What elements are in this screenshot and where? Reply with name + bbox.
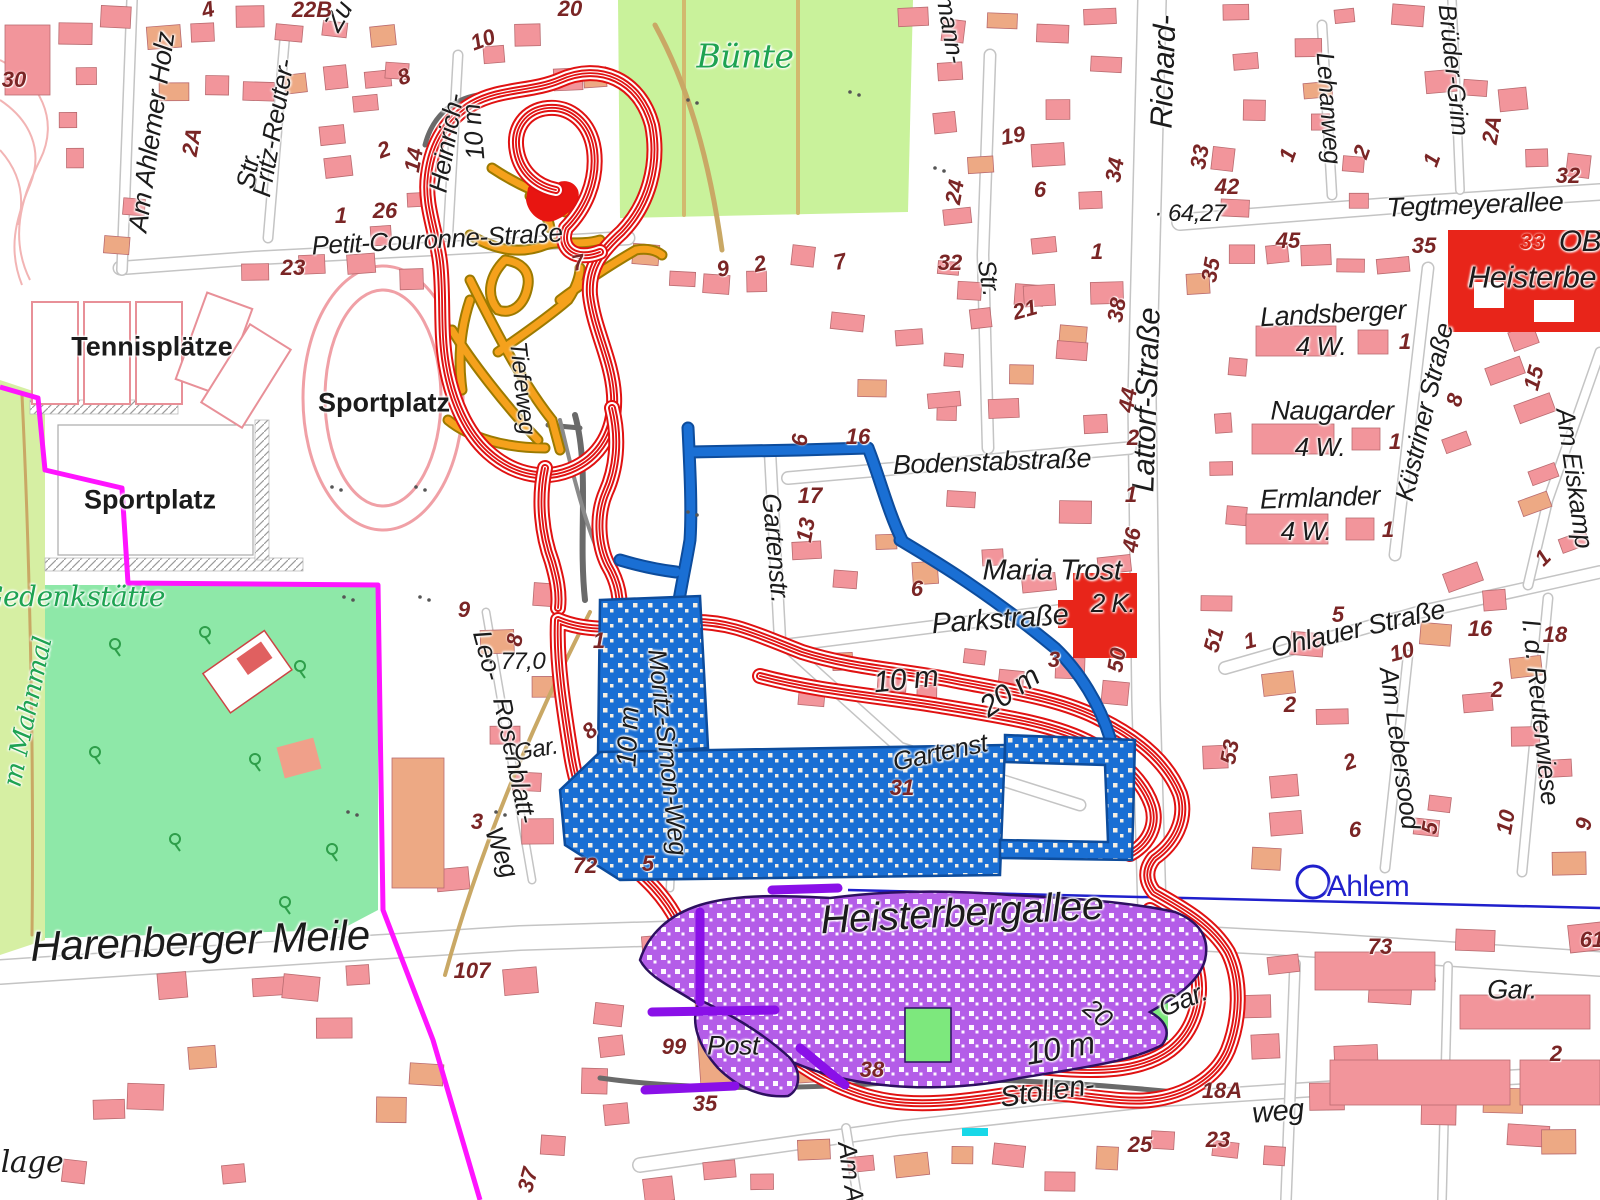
map-canvas[interactable]: Am Ahlemer HolzFritz-Reuter-Str.ZuHeinri…: [0, 0, 1600, 1200]
cyan-marker: [962, 1128, 988, 1136]
maria-trost-church: [1073, 573, 1137, 658]
school-building: [1448, 230, 1600, 332]
map-drawing: [0, 0, 1600, 1200]
sportplatz-field: [58, 425, 253, 555]
